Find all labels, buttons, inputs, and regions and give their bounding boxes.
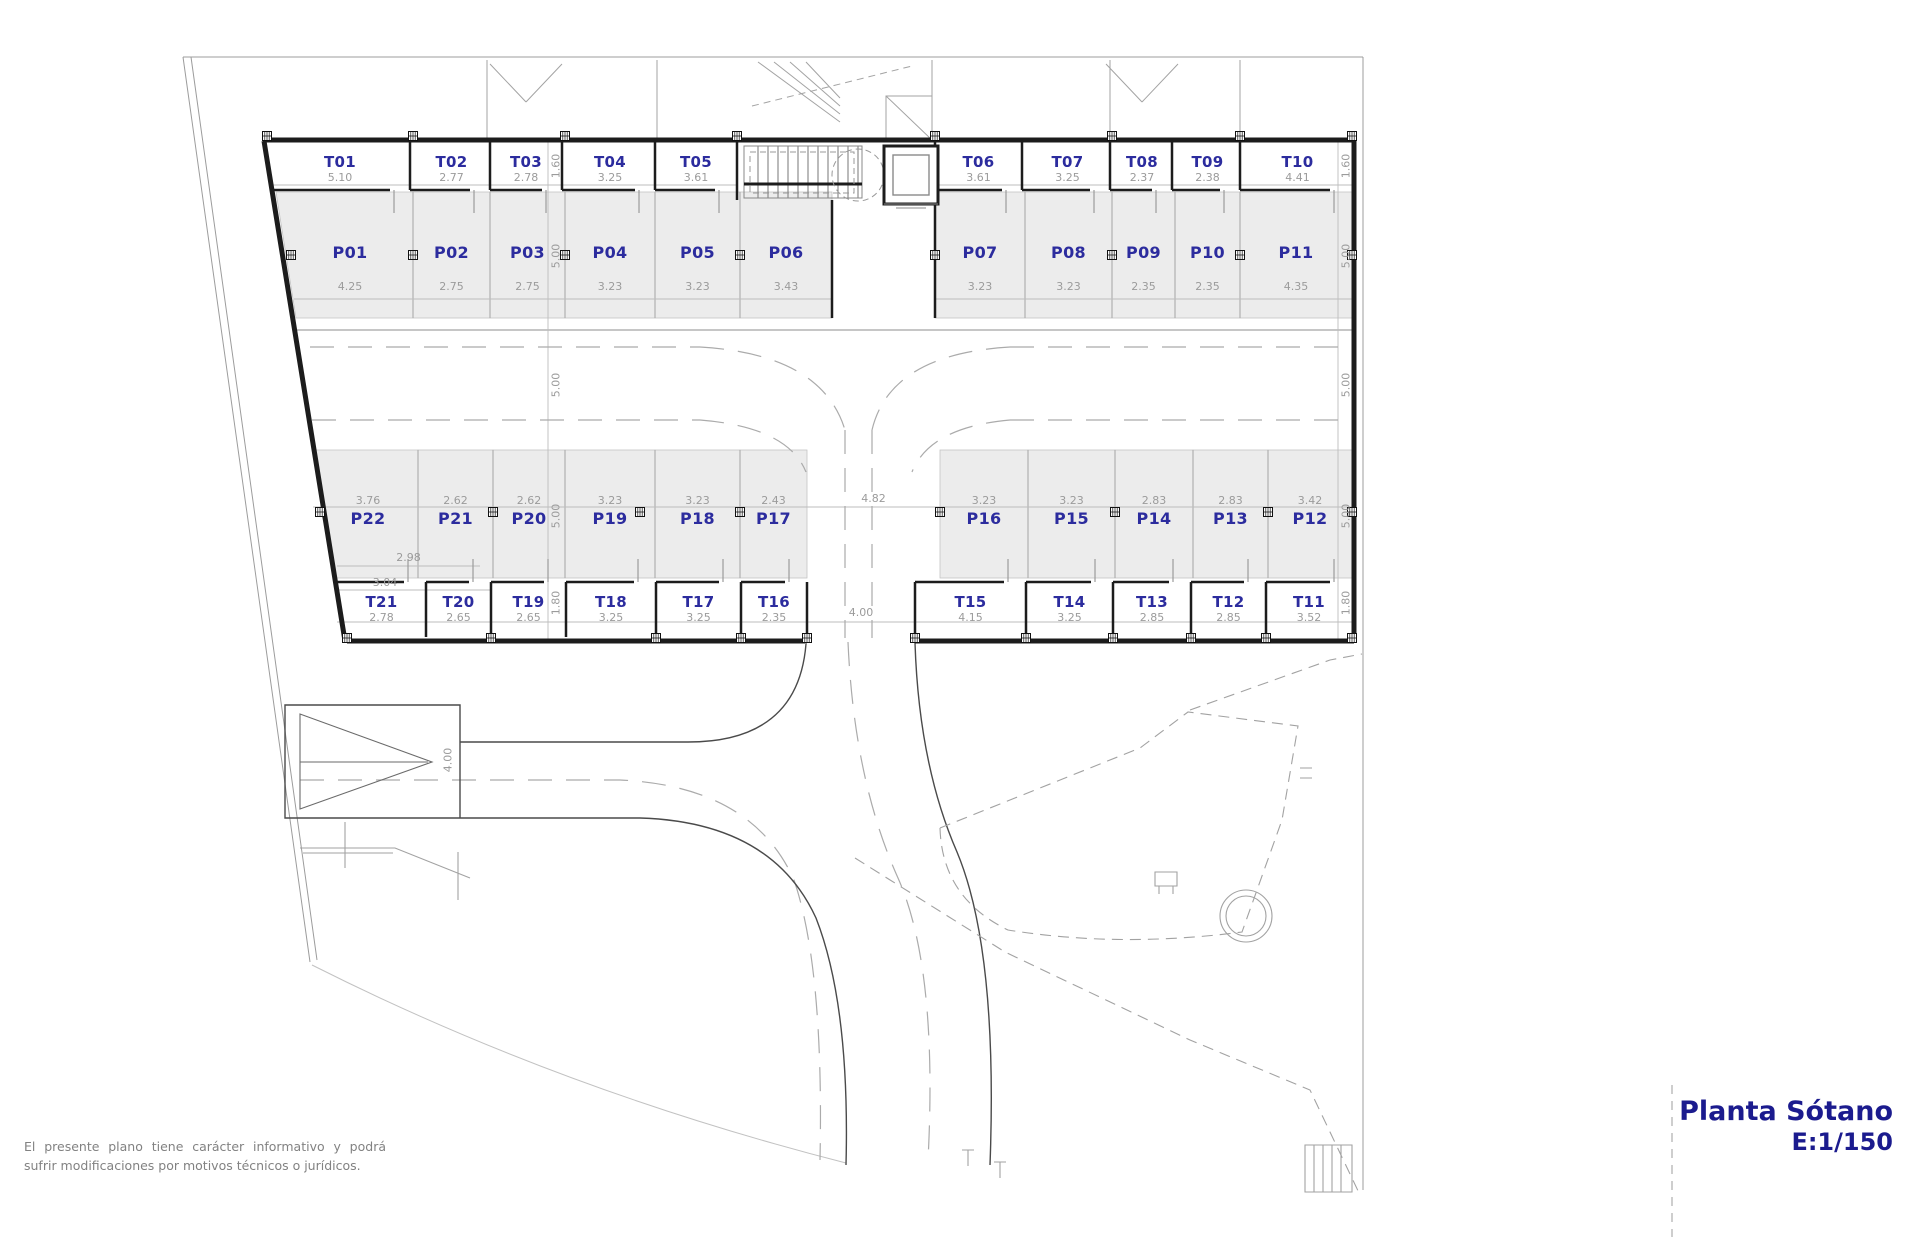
dim-aisle-gap: 4.82 [807,492,940,505]
ramp-road [285,643,991,1165]
elevator-icon [884,146,938,208]
dim-t21-outer: 3.04 [330,576,440,589]
garden-dashed-outlines [855,654,1362,1195]
dim-p22-inner: 2.98 [337,551,480,564]
garden-furniture [300,768,1352,1192]
floor-plan-linework [0,0,1920,1237]
dim-left-500c: 5.00 [550,504,563,529]
dim-left-160: 1.60 [550,154,563,179]
dim-left-180: 1.80 [550,591,563,616]
ramp-arrow-icon [300,714,432,809]
parking-stall-fills [276,192,1352,578]
upper-floor-hints [487,60,1240,140]
staircase-icon [744,146,884,201]
dim-opening-width: 4.00 [807,606,915,619]
dim-right-500a: 5.00 [1340,244,1353,269]
dim-ramp-width: 4.00 [442,748,455,773]
dim-right-180: 1.80 [1340,591,1353,616]
dim-right-500c: 5.00 [1340,504,1353,529]
dim-right-500b: 5.00 [1340,373,1353,398]
title-block: Planta Sótano E:1/150 [1679,1096,1893,1157]
basement-floor-plan: T015.10 T022.77 T032.78 T043.25 T053.61 … [0,0,1920,1237]
dim-left-500b: 5.00 [550,373,563,398]
plan-scale: E:1/150 [1679,1128,1893,1157]
disclaimer-note: El presente plano tiene carácter informa… [24,1138,386,1176]
plan-title: Planta Sótano [1679,1096,1893,1128]
dim-right-160: 1.60 [1340,154,1353,179]
dim-left-500a: 5.00 [550,244,563,269]
